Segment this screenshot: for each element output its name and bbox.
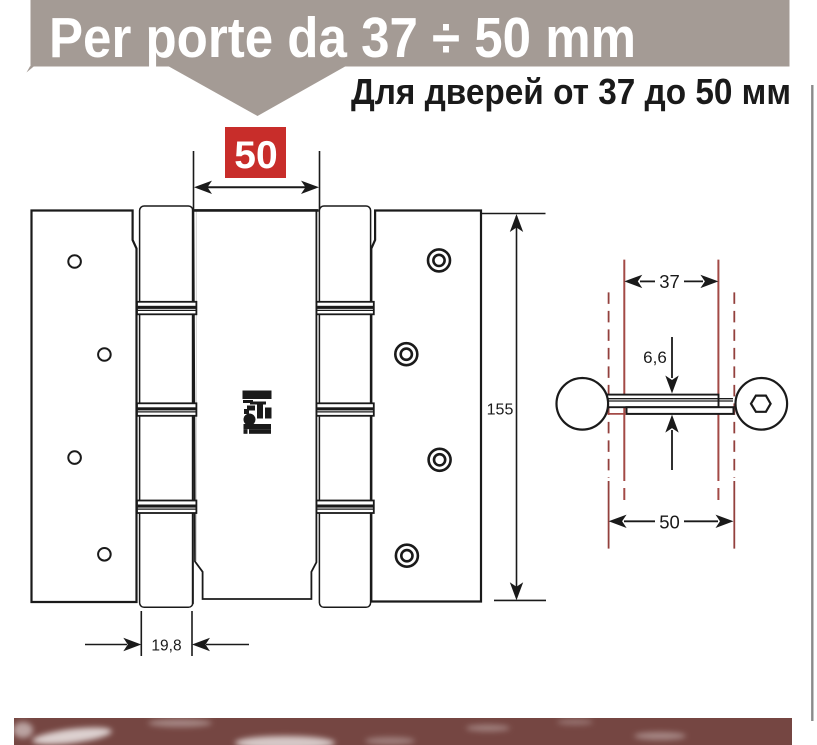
svg-text:37: 37 [659,271,680,292]
svg-text:19,8: 19,8 [151,638,181,655]
svg-text:6,6: 6,6 [643,348,667,367]
svg-text:50: 50 [659,512,680,533]
svg-text:155: 155 [487,402,514,419]
svg-text:Per porte da 37 ÷ 50 mm: Per porte da 37 ÷ 50 mm [49,6,636,70]
svg-text:Для дверей от 37 до 50 мм: Для дверей от 37 до 50 мм [351,71,791,112]
svg-text:50: 50 [234,134,277,177]
